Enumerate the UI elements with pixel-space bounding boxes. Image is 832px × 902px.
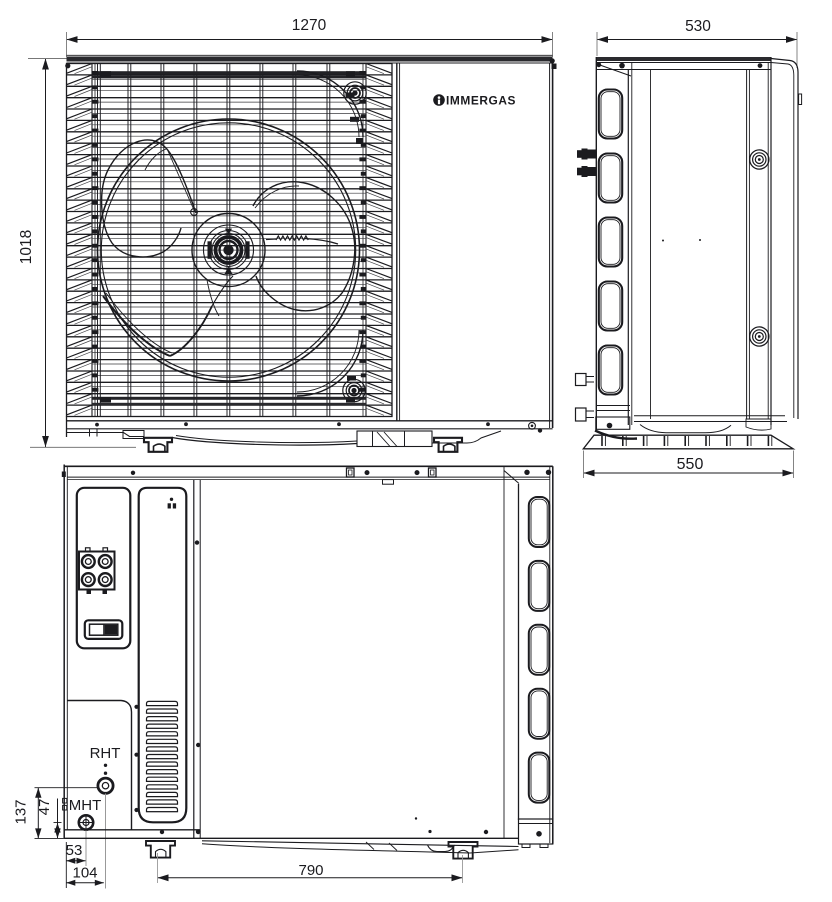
svg-text:IMMERGAS: IMMERGAS	[446, 96, 516, 108]
svg-text:47: 47	[36, 799, 53, 816]
svg-text:MHT: MHT	[69, 797, 102, 814]
svg-text:1018: 1018	[18, 230, 35, 264]
svg-text:530: 530	[685, 18, 711, 35]
svg-text:RHT: RHT	[90, 745, 121, 762]
svg-text:53: 53	[66, 842, 83, 859]
svg-text:1270: 1270	[292, 17, 327, 34]
svg-text:550: 550	[677, 456, 704, 473]
svg-text:104: 104	[72, 865, 97, 882]
svg-text:790: 790	[298, 862, 323, 879]
svg-text:137: 137	[13, 799, 30, 824]
